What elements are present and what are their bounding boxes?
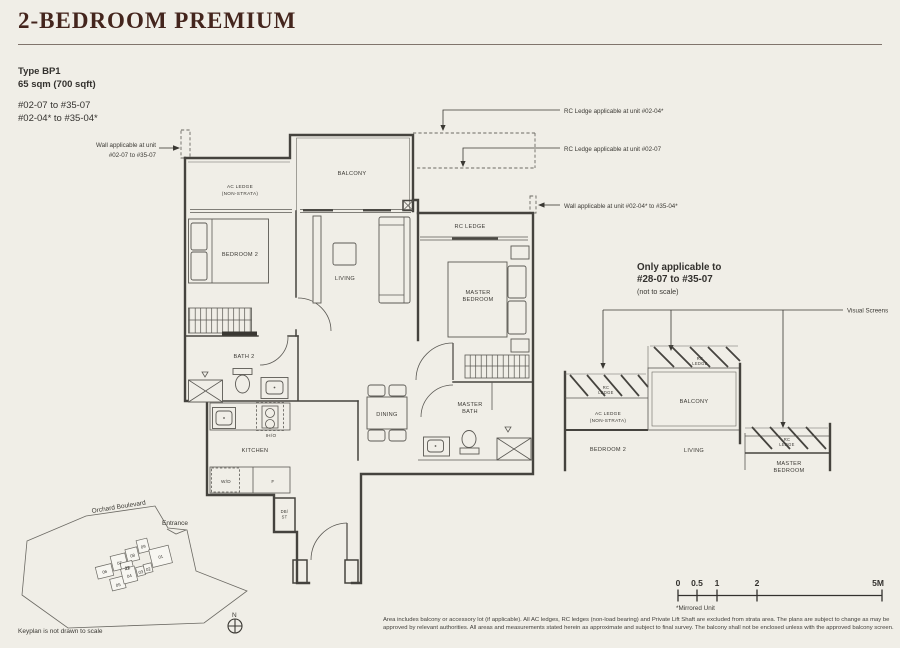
room-label-bedroom2: BEDROOM 2 bbox=[222, 252, 258, 258]
section-rc-1b: LEDGE bbox=[598, 390, 613, 395]
room-label-f: F bbox=[271, 479, 274, 484]
room-label-master-2: BEDROOM bbox=[462, 297, 493, 303]
dashed-wall-right bbox=[530, 196, 536, 213]
room-label-bath2: BATH 2 bbox=[234, 354, 255, 360]
dashed-rc-ledge-lines bbox=[413, 133, 535, 168]
section-ac-ledge-2: (NON-STRATA) bbox=[590, 418, 627, 423]
floor-plan-drawing: AC LEDGE (NON-STRATA) BALCONY RC LEDGE B… bbox=[0, 0, 900, 648]
annotation-rc-ledge-04: RC Ledge applicable at unit #02-04* bbox=[564, 108, 664, 115]
section-master-1: MASTER bbox=[776, 461, 801, 467]
section-bedroom2: BEDROOM 2 bbox=[590, 447, 626, 453]
section-rc-2b: LEDGE bbox=[692, 361, 707, 366]
room-label-balcony: BALCONY bbox=[338, 171, 367, 177]
room-label-ac-ledge: AC LEDGE bbox=[227, 184, 253, 189]
master-wardrobe bbox=[465, 355, 529, 378]
section-diagram: Only applicable to #28-07 to #35-07 (not… bbox=[565, 262, 888, 474]
annotation-wall-left-1: Wall applicable at unit bbox=[96, 142, 156, 149]
section-note: (not to scale) bbox=[637, 287, 679, 296]
north-label: N bbox=[232, 612, 237, 619]
plan-annotations: Wall applicable at unit #02-07 to #35-07… bbox=[96, 108, 678, 210]
scale-bar: 0 0.5 1 2 5M *Mirrored Unit bbox=[676, 578, 884, 612]
keyplan-blocks: 06 07 08 09 22 01 05 04 03 02 bbox=[91, 534, 175, 594]
room-label-db: DB/ bbox=[281, 509, 289, 514]
room-label-master-1: MASTER bbox=[465, 290, 490, 296]
annotation-wall-left-2: #02-07 to #35-07 bbox=[109, 152, 157, 159]
section-living: LIVING bbox=[684, 448, 704, 454]
keyplan-entrance-label: Entrance bbox=[162, 520, 188, 527]
dashed-wall-topleft bbox=[181, 130, 190, 158]
north-compass-icon: N bbox=[228, 612, 242, 633]
keyplan-note: Keyplan is not drawn to scale bbox=[18, 628, 103, 635]
mirrored-unit-note: *Mirrored Unit bbox=[676, 605, 715, 612]
bath2-fixtures bbox=[189, 369, 289, 403]
room-label-st: ST bbox=[282, 515, 288, 520]
section-rc-3b: LEDGE bbox=[779, 442, 794, 447]
living-furniture bbox=[313, 216, 410, 303]
master-bath-fixtures bbox=[424, 427, 532, 460]
annotation-visual-screens: Visual Screens bbox=[847, 308, 888, 315]
scale-1: 1 bbox=[715, 578, 720, 588]
scale-0-5: 0.5 bbox=[691, 578, 703, 588]
room-label-wd: W/D bbox=[221, 479, 231, 484]
section-master-2: BEDROOM bbox=[773, 468, 804, 474]
room-label-kitchen: KITCHEN bbox=[242, 448, 269, 454]
room-label-dining: DINING bbox=[376, 412, 397, 418]
floor-plan: AC LEDGE (NON-STRATA) BALCONY RC LEDGE B… bbox=[181, 130, 536, 583]
scale-0: 0 bbox=[676, 578, 681, 588]
room-label-mbath-1: MASTER bbox=[457, 402, 482, 408]
scale-5m: 5M bbox=[872, 578, 884, 588]
section-title-1: Only applicable to bbox=[637, 262, 721, 273]
keyplan: Orchard Boulevard Entrance 06 07 08 09 2… bbox=[18, 499, 247, 635]
annotation-wall-right: Wall applicable at unit #02-04* to #35-0… bbox=[564, 203, 678, 210]
disclaimer-text: Area includes balcony or accessory lot (… bbox=[383, 617, 897, 633]
room-label-iho: IH/O bbox=[266, 433, 277, 438]
bedroom2-wardrobe bbox=[189, 308, 252, 333]
ac-unit-box bbox=[403, 201, 413, 211]
master-bath-door-arc bbox=[421, 385, 453, 417]
keyplan-road-label: Orchard Boulevard bbox=[91, 499, 146, 515]
entrance-door-arc bbox=[311, 523, 347, 560]
section-title-2: #28-07 to #35-07 bbox=[637, 274, 713, 285]
section-balcony: BALCONY bbox=[680, 399, 709, 405]
master-door-arc bbox=[416, 343, 453, 380]
bedroom2-furniture bbox=[189, 219, 269, 336]
bath2-door-arc bbox=[260, 337, 288, 365]
room-label-living: LIVING bbox=[335, 276, 355, 282]
sliding-door-panel bbox=[222, 332, 257, 336]
annotation-rc-ledge-07: RC Ledge applicable at unit #02-07 bbox=[564, 146, 662, 153]
room-label-rc-ledge: RC LEDGE bbox=[455, 224, 486, 230]
room-label-mbath-2: BATH bbox=[462, 409, 478, 415]
scale-2: 2 bbox=[755, 578, 760, 588]
section-ac-ledge-1: AC LEDGE bbox=[595, 411, 621, 416]
room-label-ac-ledge-sub: (NON-STRATA) bbox=[222, 191, 259, 196]
bedroom2-window bbox=[190, 210, 292, 213]
master-bedroom-furniture bbox=[448, 246, 529, 378]
